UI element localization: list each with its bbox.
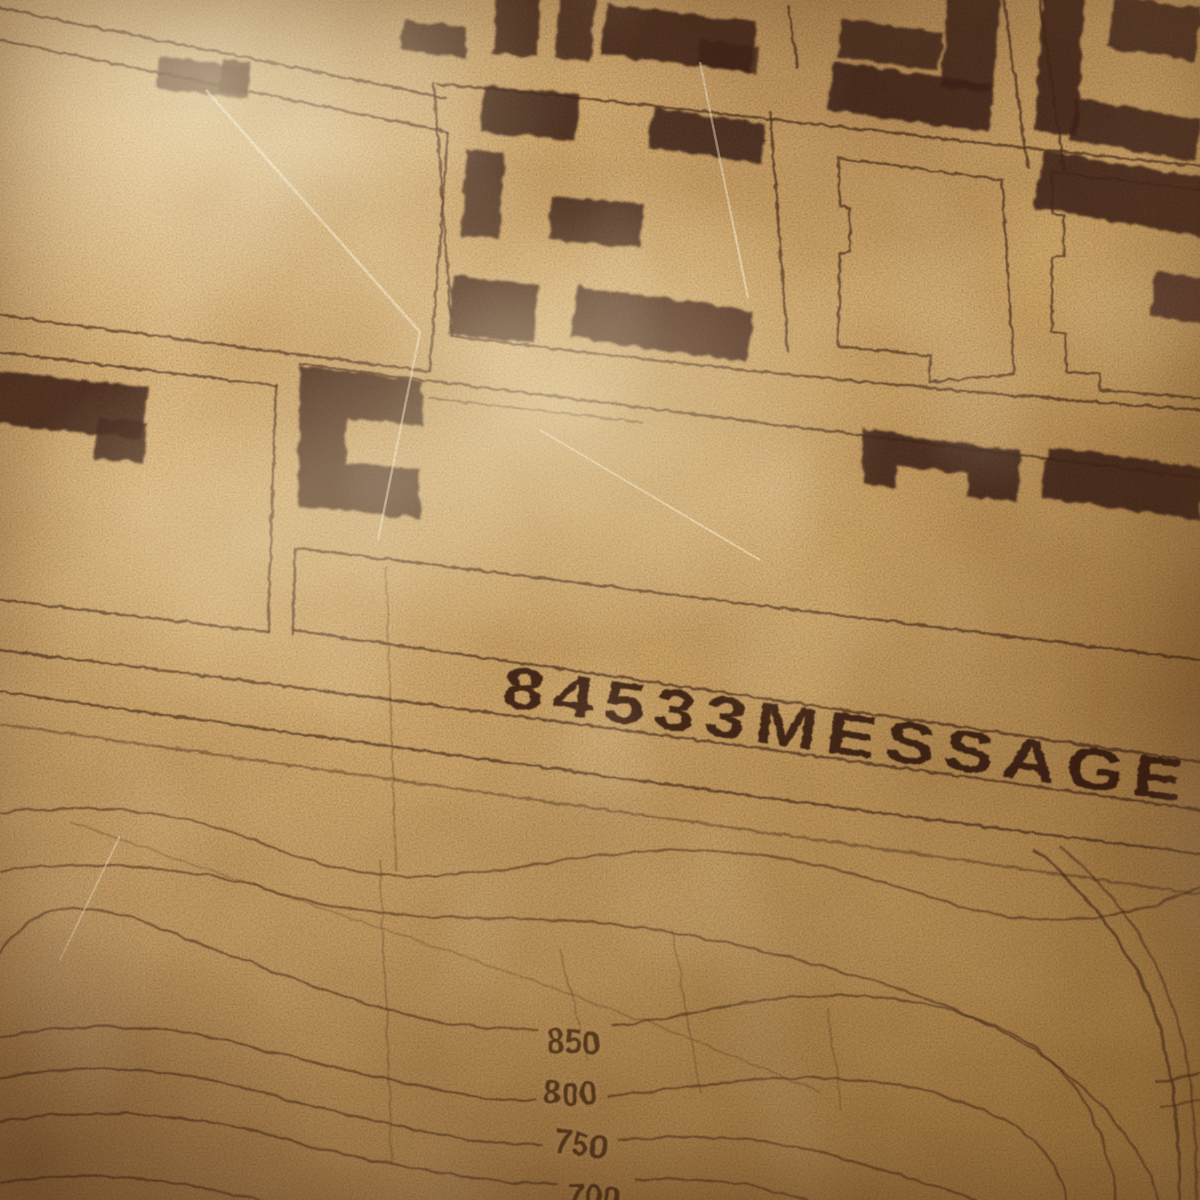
map-svg: 850 800 750 700 84533MESSAGE	[0, 0, 1200, 1200]
paper-grain-texture	[0, 0, 1200, 1200]
scanned-map-image: 850 800 750 700 84533MESSAGE	[0, 0, 1200, 1200]
